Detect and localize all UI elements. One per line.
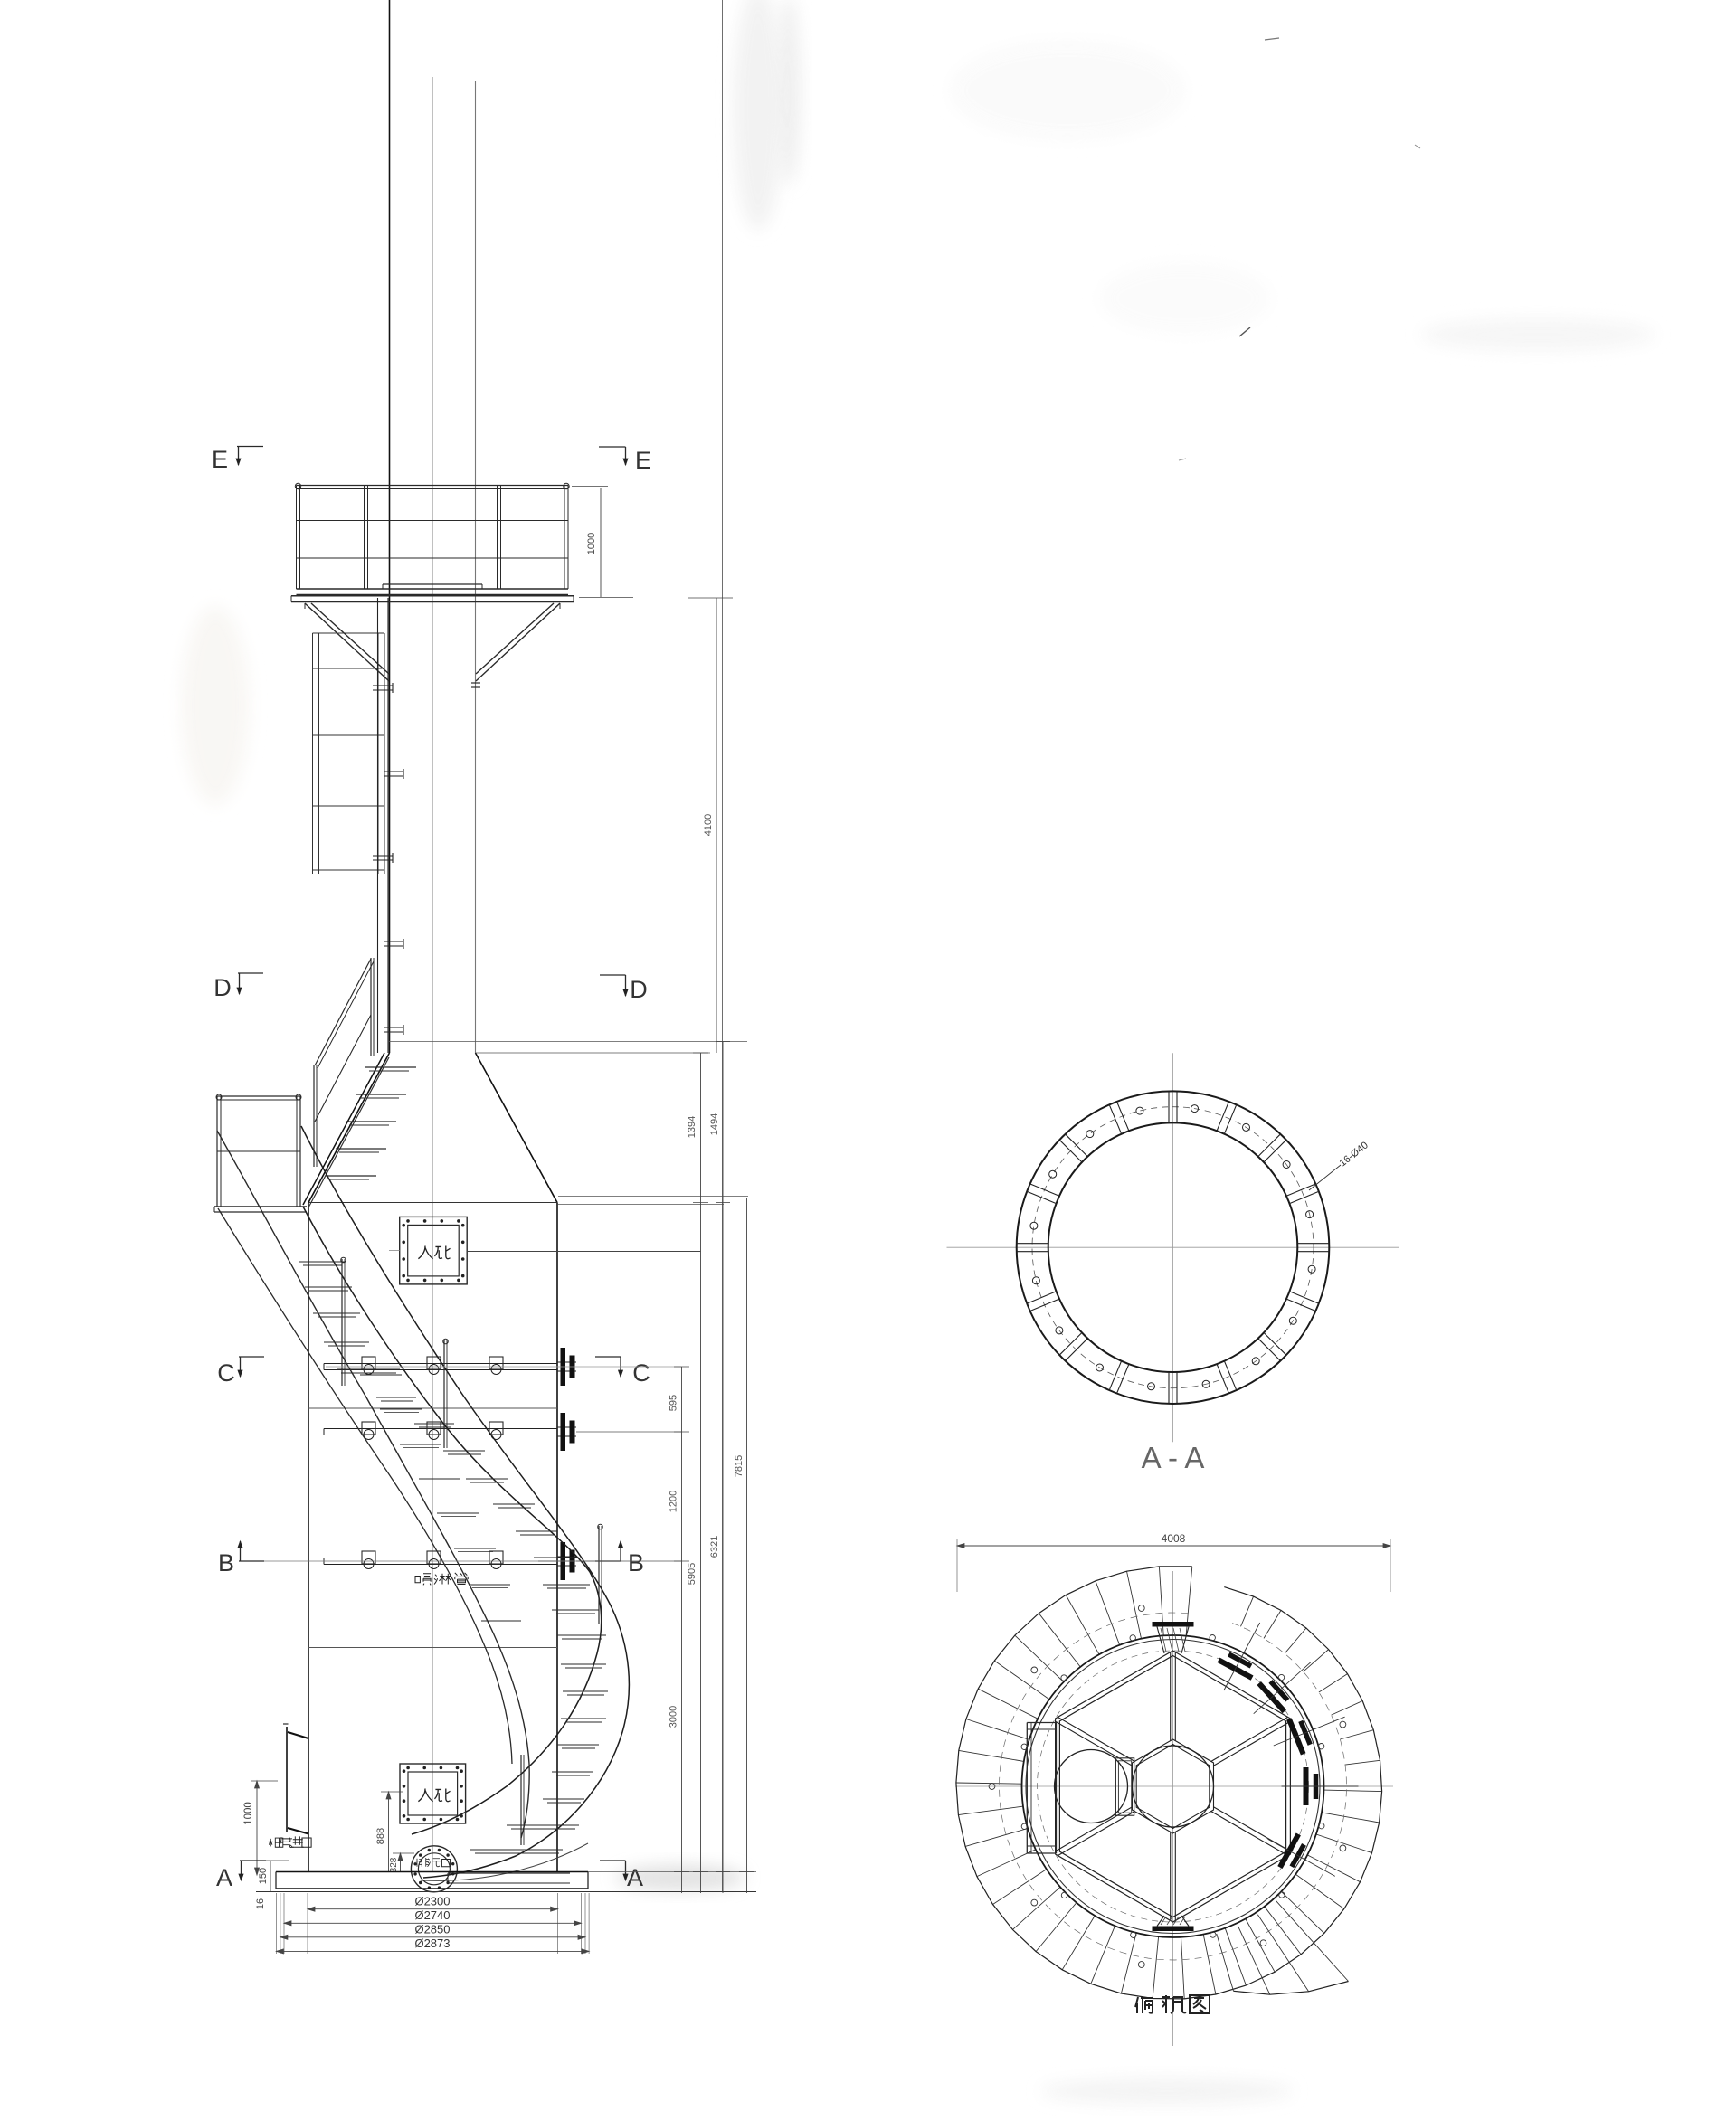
svg-text:7815: 7815	[734, 1455, 745, 1477]
svg-text:1394: 1394	[687, 1116, 697, 1138]
svg-text:4100: 4100	[703, 814, 714, 836]
svg-text:A - A: A - A	[1142, 1441, 1205, 1474]
svg-text:E: E	[635, 447, 651, 474]
svg-text:Ø2850: Ø2850	[414, 1923, 450, 1936]
svg-text:1200: 1200	[669, 1491, 679, 1512]
svg-text:Ø2873: Ø2873	[414, 1936, 450, 1950]
svg-text:B: B	[218, 1549, 234, 1577]
svg-text:1000: 1000	[586, 533, 597, 554]
svg-text:D: D	[630, 976, 648, 1003]
svg-text:1494: 1494	[709, 1113, 720, 1135]
svg-text:C: C	[217, 1359, 235, 1387]
svg-text:328: 328	[389, 1857, 399, 1872]
svg-text:Ø2740: Ø2740	[414, 1908, 450, 1922]
svg-text:E: E	[212, 446, 228, 473]
svg-text:6321: 6321	[709, 1536, 720, 1558]
svg-text:595: 595	[669, 1395, 679, 1411]
svg-text:3000: 3000	[669, 1706, 679, 1728]
svg-text:Ø2300: Ø2300	[414, 1895, 450, 1908]
svg-text:888: 888	[375, 1828, 386, 1844]
svg-text:150: 150	[258, 1868, 269, 1884]
svg-text:D: D	[213, 974, 232, 1001]
svg-text:A: A	[627, 1864, 643, 1891]
svg-text:B: B	[628, 1549, 644, 1577]
svg-text:16: 16	[255, 1898, 266, 1909]
svg-text:5905: 5905	[687, 1563, 697, 1585]
svg-text:A: A	[216, 1864, 232, 1891]
svg-text:1000: 1000	[243, 1802, 254, 1825]
svg-text:4008: 4008	[1162, 1532, 1186, 1545]
svg-text:C: C	[632, 1359, 650, 1387]
